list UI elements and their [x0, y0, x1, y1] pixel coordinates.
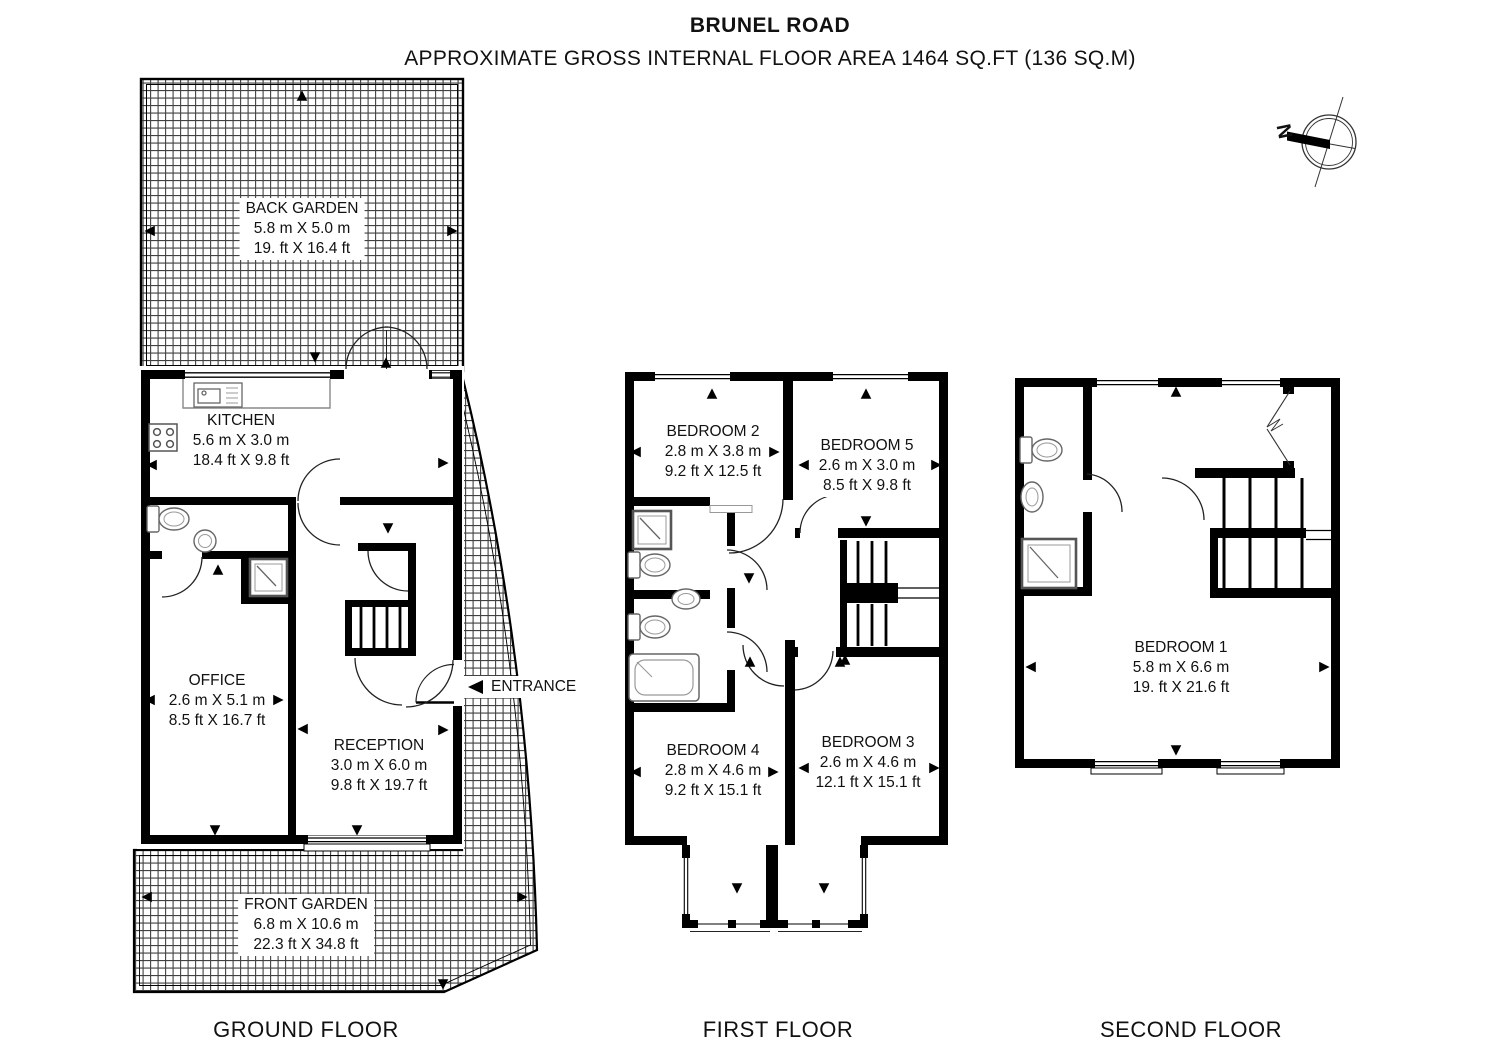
room-dim-metric: 2.6 m X 5.1 m — [169, 691, 266, 711]
entrance-label: ENTRANCE — [463, 676, 581, 698]
room-dim-imperial: 22.3 ft X 34.8 ft — [244, 935, 368, 955]
room-label-bedroom2: BEDROOM 2 2.8 m X 3.8 m 9.2 ft X 12.5 ft — [659, 421, 768, 483]
room-dim-metric: 2.8 m X 4.6 m — [665, 761, 762, 781]
floor-caption-ground: GROUND FLOOR — [213, 1017, 399, 1043]
room-dim-imperial: 8.5 ft X 16.7 ft — [169, 711, 266, 731]
room-name: RECEPTION — [331, 736, 428, 756]
window — [185, 370, 330, 380]
shower-icon — [250, 559, 287, 596]
shower-icon — [633, 511, 671, 549]
room-name: BEDROOM 1 — [1133, 638, 1230, 658]
room-label-back-garden: BACK GARDEN 5.8 m X 5.0 m 19. ft X 16.4 … — [240, 198, 365, 260]
shower-icon — [1022, 539, 1076, 588]
room-name: FRONT GARDEN — [244, 895, 368, 915]
room-label-bedroom5: BEDROOM 5 2.6 m X 3.0 m 8.5 ft X 9.8 ft — [813, 435, 921, 497]
room-label-front-garden: FRONT GARDEN 6.8 m X 10.6 m 22.3 ft X 34… — [238, 894, 374, 956]
room-dim-imperial: 9.2 ft X 12.5 ft — [665, 462, 762, 482]
room-dim-imperial: 19. ft X 21.6 ft — [1133, 678, 1230, 698]
floor-caption-first: FIRST FLOOR — [703, 1017, 854, 1043]
room-dim-metric: 2.6 m X 3.0 m — [819, 456, 915, 476]
room-dim-imperial: 12.1 ft X 15.1 ft — [815, 773, 920, 793]
room-dim-metric: 6.8 m X 10.6 m — [244, 915, 368, 935]
compass-rose — [1287, 97, 1356, 187]
room-name: OFFICE — [169, 671, 266, 691]
room-label-bedroom4: BEDROOM 4 2.8 m X 4.6 m 9.2 ft X 15.1 ft — [659, 740, 768, 802]
floorplan-page: BRUNEL ROAD APPROXIMATE GROSS INTERNAL F… — [0, 0, 1504, 1063]
floor-caption-second: SECOND FLOOR — [1100, 1017, 1282, 1043]
room-dim-metric: 2.8 m X 3.8 m — [665, 442, 762, 462]
toilet-icon — [628, 552, 670, 578]
room-name: BACK GARDEN — [246, 199, 359, 219]
room-name: KITCHEN — [193, 411, 290, 431]
room-name: BEDROOM 2 — [665, 422, 762, 442]
room-dim-metric: 5.6 m X 3.0 m — [193, 431, 290, 451]
toilet-icon — [1020, 437, 1062, 463]
room-dim-metric: 2.6 m X 4.6 m — [815, 753, 920, 773]
bathtub-icon — [629, 654, 699, 701]
room-name: BEDROOM 4 — [665, 741, 762, 761]
room-dim-imperial: 19. ft X 16.4 ft — [246, 239, 359, 259]
room-dim-imperial: 9.2 ft X 15.1 ft — [665, 781, 762, 801]
page-subtitle: APPROXIMATE GROSS INTERNAL FLOOR AREA 14… — [404, 47, 1136, 71]
room-dim-imperial: 8.5 ft X 9.8 ft — [819, 476, 915, 496]
room-dim-imperial: 9.8 ft X 19.7 ft — [331, 776, 428, 796]
room-dim-metric: 5.8 m X 5.0 m — [246, 219, 359, 239]
entrance-text: ENTRANCE — [491, 678, 576, 696]
window — [304, 836, 430, 852]
room-label-bedroom3: BEDROOM 3 2.6 m X 4.6 m 12.1 ft X 15.1 f… — [809, 732, 926, 794]
room-name: BEDROOM 5 — [819, 436, 915, 456]
room-dim-imperial: 18.4 ft X 9.8 ft — [193, 451, 290, 471]
second-floor-plan — [1011, 374, 1344, 776]
sink-icon — [1021, 482, 1043, 512]
room-label-reception: RECEPTION 3.0 m X 6.0 m 9.8 ft X 19.7 ft — [325, 735, 434, 797]
room-label-bedroom1: BEDROOM 1 5.8 m X 6.6 m 19. ft X 21.6 ft — [1127, 637, 1236, 699]
page-title: BRUNEL ROAD — [690, 14, 850, 38]
sink-icon — [672, 589, 700, 609]
toilet-icon — [147, 506, 189, 532]
stove-icon — [149, 424, 177, 451]
kitchen-sink-icon — [194, 383, 242, 407]
room-dim-metric: 5.8 m X 6.6 m — [1133, 658, 1230, 678]
floorplan-canvas — [0, 0, 1504, 1063]
room-label-kitchen: KITCHEN 5.6 m X 3.0 m 18.4 ft X 9.8 ft — [187, 410, 296, 472]
room-name: BEDROOM 3 — [815, 733, 920, 753]
toilet-icon — [628, 614, 670, 640]
room-label-office: OFFICE 2.6 m X 5.1 m 8.5 ft X 16.7 ft — [163, 670, 272, 732]
window — [432, 371, 450, 379]
room-dim-metric: 3.0 m X 6.0 m — [331, 756, 428, 776]
sink-icon — [194, 530, 216, 552]
entrance-arrow-icon — [468, 680, 483, 694]
